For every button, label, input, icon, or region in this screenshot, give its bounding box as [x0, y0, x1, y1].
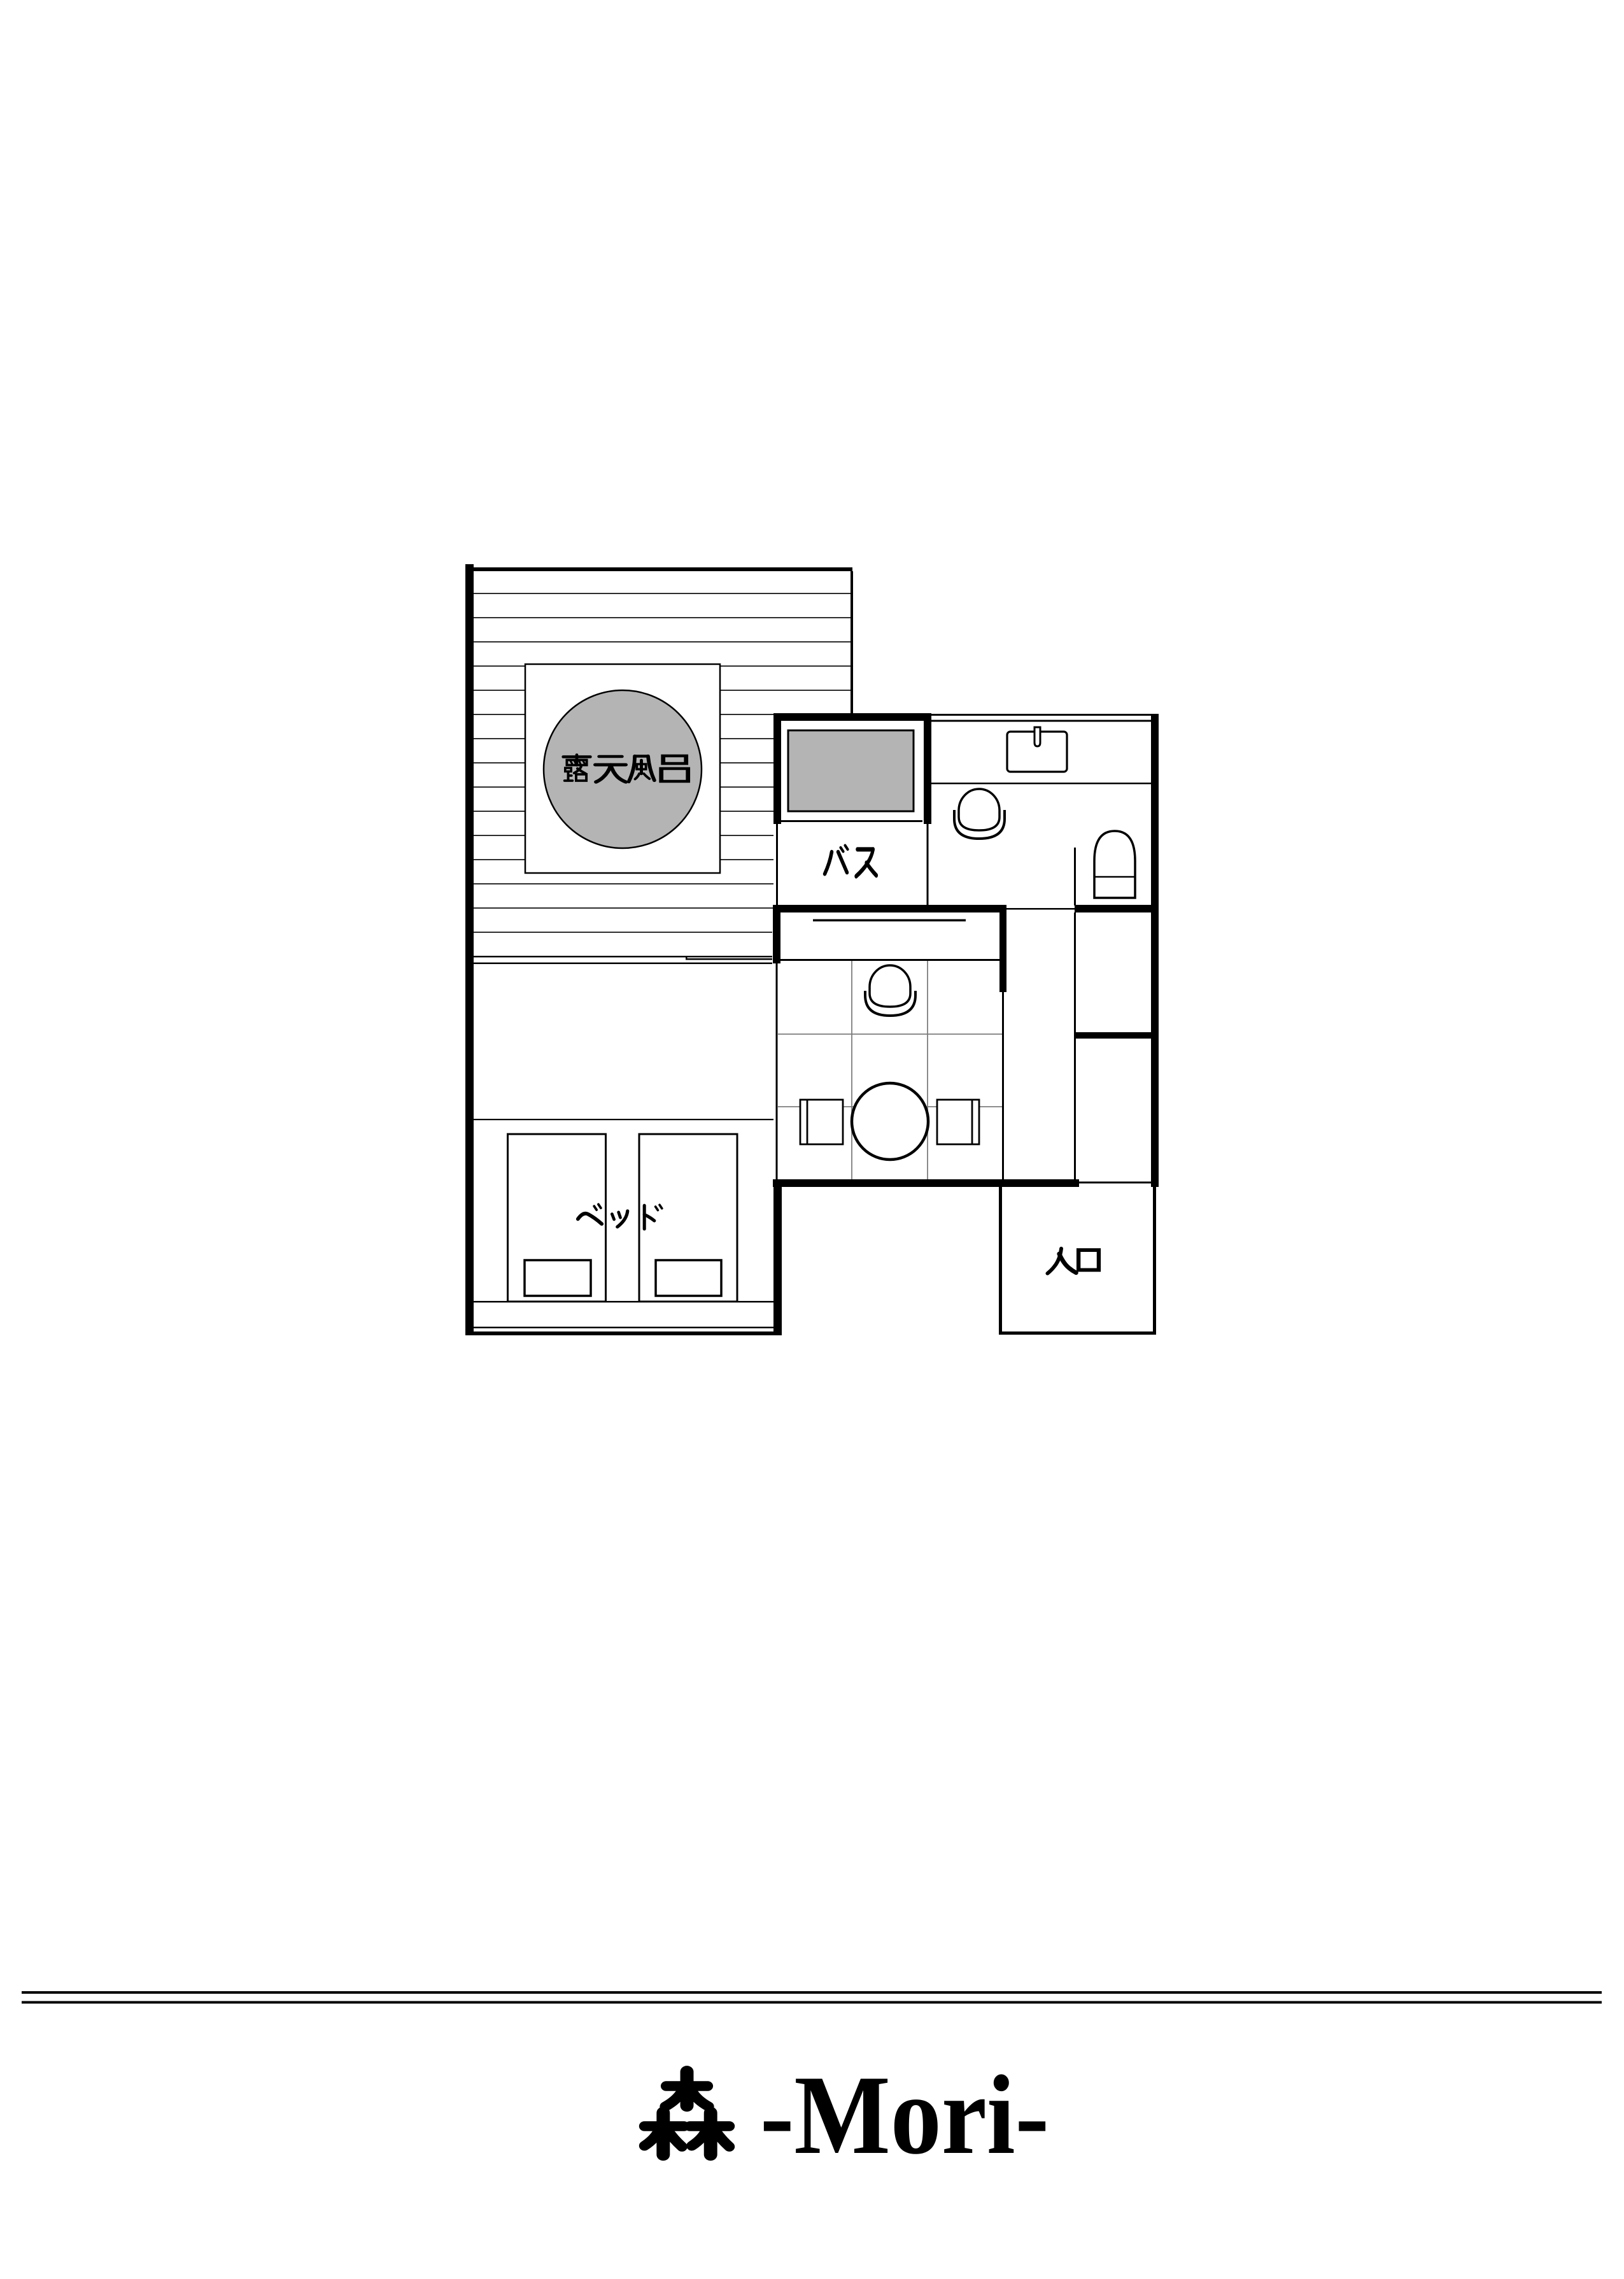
svg-text:-Mori-: -Mori-: [760, 2052, 1049, 2178]
